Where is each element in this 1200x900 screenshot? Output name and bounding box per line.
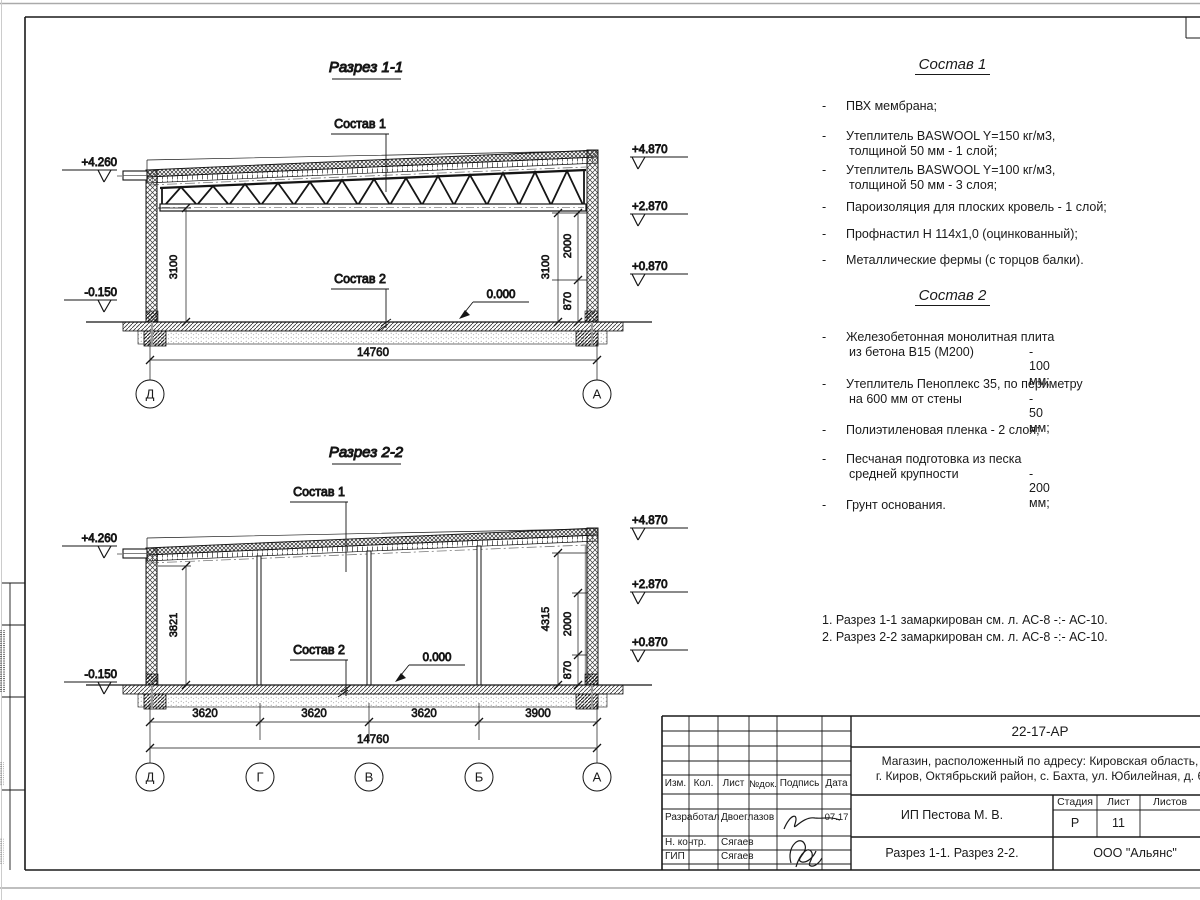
axis-bubbles: Д А (136, 380, 611, 408)
list-item-text: Песчаная подготовка из песка средней кру… (846, 452, 1022, 481)
dim-label: 4315 (540, 607, 552, 631)
col-header-data: Дата (822, 775, 851, 794)
name-gip: Сягаев (721, 851, 777, 864)
interior-columns (157, 545, 586, 685)
leader-label: Состав 1 (334, 117, 386, 131)
client-name: ИП Пестова М. В. (851, 795, 1053, 837)
elevation-label: +4.260 (82, 533, 118, 545)
elevation-label: +2.870 (632, 201, 668, 213)
dash-bullet: - (822, 129, 830, 158)
vertical-dimensions: 3100 3100 2000 870 (158, 204, 587, 326)
dim-label: 14760 (357, 734, 389, 746)
elevation-label: +4.260 (82, 157, 118, 169)
dash-bullet: - (822, 330, 830, 359)
list-item: - Металлические фермы (с торцов балки). (822, 253, 1084, 268)
left-wall (146, 548, 157, 685)
role-nkontr: Н. контр. (665, 837, 720, 850)
composition-leaders: Состав 1 Состав 2 (331, 117, 391, 331)
stage-value: Р (1053, 810, 1097, 837)
canopy (117, 171, 147, 180)
elevation-label: +0.870 (632, 261, 668, 273)
dim-label: 870 (562, 661, 574, 679)
date-razrabotal: 07.17 (822, 810, 851, 826)
sostav1-heading: Состав 1 (860, 56, 1045, 73)
note-line: 1. Разрез 1-1 замаркирован см. л. АС-8 -… (822, 612, 1108, 629)
span-dimensions: 3620 3620 3620 3900 14760 (146, 703, 601, 763)
section-title: Разрез 1-1 (329, 59, 403, 76)
sheets-label: Листов (1140, 795, 1200, 810)
leader-label: Состав 2 (293, 643, 345, 657)
dash-bullet: - (822, 163, 830, 192)
list-item: - Пароизоляция для плоских кровель - 1 с… (822, 200, 1107, 215)
list-item-text: ПВХ мембрана; (846, 99, 937, 114)
dim-label: 14760 (357, 347, 389, 359)
list-item: - Профнастил Н 114х1,0 (оцинкованный); (822, 227, 1078, 242)
list-item: - Грунт основания. (822, 498, 946, 513)
dim-label: 2000 (562, 234, 574, 258)
dash-bullet: - (822, 253, 830, 268)
list-item: - Утеплитель BASWOOL Y=150 кг/м3, толщин… (822, 129, 1055, 158)
dash-bullet: - (822, 99, 830, 114)
role-gip: ГИП (665, 851, 720, 864)
axis-bubble-label: А (593, 770, 602, 785)
list-item-text: Утеплитель Пеноплекс 35, по периметру на… (846, 377, 1083, 406)
project-name: Магазин, расположенный по адресу: Кировс… (862, 749, 1200, 798)
col-header-ndok: №док. (749, 775, 777, 794)
axis-bubble-label: В (365, 770, 374, 785)
list-item-text: Пароизоляция для плоских кровель - 1 сло… (846, 200, 1107, 215)
dash-bullet: - (822, 498, 830, 513)
axis-bubbles: Д Г В Б А (136, 763, 611, 791)
col-header-list: Лист (718, 775, 749, 794)
list-item-text: Профнастил Н 114х1,0 (оцинкованный); (846, 227, 1078, 242)
stage-label: Стадия (1053, 795, 1097, 810)
floor-slab (86, 311, 652, 346)
left-margin-stamps (0, 583, 25, 870)
col-header-podpis: Подпись (777, 775, 822, 794)
doc-code: 22-17-АР (880, 719, 1200, 745)
sheet-value: 11 (1097, 810, 1140, 837)
drawing-sheet: { "section1": { "title": "Разрез 1-1", "… (0, 0, 1200, 900)
note-line: 2. Разрез 2-2 замаркирован см. л. АС-8 -… (822, 629, 1108, 646)
list-item-text: Утеплитель BASWOOL Y=150 кг/м3, толщиной… (846, 129, 1055, 158)
right-wall (587, 528, 598, 685)
list-item-text: Железобетонная монолитная плита из бетон… (846, 330, 1054, 359)
list-item: - ПВХ мембрана; (822, 99, 937, 114)
dim-label: 3620 (301, 708, 327, 720)
dim-label: 2000 (562, 612, 574, 636)
list-item: - Полиэтиленовая пленка - 2 слоя; (822, 423, 1040, 438)
section-title: Разрез 2-2 (329, 444, 404, 461)
right-wall (587, 150, 598, 322)
list-item-text: Грунт основания. (846, 498, 946, 513)
sostav2-heading: Состав 2 (860, 287, 1045, 304)
total-dimension: 14760 (146, 340, 601, 380)
leader-label: Состав 2 (334, 272, 386, 286)
left-wall (146, 170, 157, 322)
role-razrabotal: Разработал (665, 810, 720, 826)
col-header-izm: Изм. (662, 775, 689, 794)
dim-label: 870 (562, 292, 574, 310)
dim-label: 3620 (192, 708, 218, 720)
canopy (117, 549, 147, 558)
list-item-text: Полиэтиленовая пленка - 2 слоя; (846, 423, 1040, 438)
section-2-2-drawing: Разрез 2-2 (62, 444, 688, 791)
list-item: - Железобетонная монолитная плита из бет… (822, 330, 1054, 359)
dash-bullet: - (822, 200, 830, 215)
elevation-label: 0.000 (423, 652, 452, 664)
dash-bullet: - (822, 377, 830, 406)
elevation-label: -0.150 (84, 287, 117, 299)
sheet-label: Лист (1097, 795, 1140, 810)
leader-label: Состав 1 (293, 485, 345, 499)
elevation-label: +2.870 (632, 579, 668, 591)
list-item: - Утеплитель BASWOOL Y=100 кг/м3, толщин… (822, 163, 1055, 192)
axis-bubble-label: Г (256, 770, 263, 785)
name-nkontr: Сягаев (721, 837, 777, 850)
dash-bullet: - (822, 423, 830, 438)
elevation-label: +0.870 (632, 637, 668, 649)
list-item: - Утеплитель Пеноплекс 35, по периметру … (822, 377, 1083, 406)
axis-bubble-label: Б (475, 770, 484, 785)
elevation-label: +4.870 (632, 515, 668, 527)
dash-bullet: - (822, 452, 830, 481)
section-1-1-drawing: Разрез 1-1 (62, 59, 688, 408)
notes: 1. Разрез 1-1 замаркирован см. л. АС-8 -… (822, 612, 1108, 645)
axis-bubble-label: А (593, 387, 602, 402)
dim-label: 3821 (168, 613, 180, 637)
elevation-label: +4.870 (632, 144, 668, 156)
dim-label: 3100 (540, 255, 552, 279)
name-razrabotal: Двоеглазов (721, 810, 777, 826)
elevation-label: 0.000 (487, 289, 516, 301)
vertical-dimensions: 3821 4315 2000 870 (158, 549, 587, 689)
dim-label: 3620 (411, 708, 437, 720)
sheet-title: Разрез 1-1. Разрез 2-2. (851, 837, 1053, 870)
dash-bullet: - (822, 227, 830, 242)
elevation-label: -0.150 (84, 669, 117, 681)
list-item: - Песчаная подготовка из песка средней к… (822, 452, 1022, 481)
axis-bubble-label: Д (146, 770, 155, 785)
col-header-kol: Кол. (689, 775, 718, 794)
list-item-text: Утеплитель BASWOOL Y=100 кг/м3, толщиной… (846, 163, 1055, 192)
organization: ООО "Альянс" (1053, 837, 1200, 870)
axis-bubble-label: Д (146, 387, 155, 402)
composition-leaders: Состав 1 Состав 2 (290, 485, 351, 697)
list-item-text: Металлические фермы (с торцов балки). (846, 253, 1084, 268)
dim-label: 3900 (525, 708, 551, 720)
dim-label: 3100 (168, 255, 180, 279)
